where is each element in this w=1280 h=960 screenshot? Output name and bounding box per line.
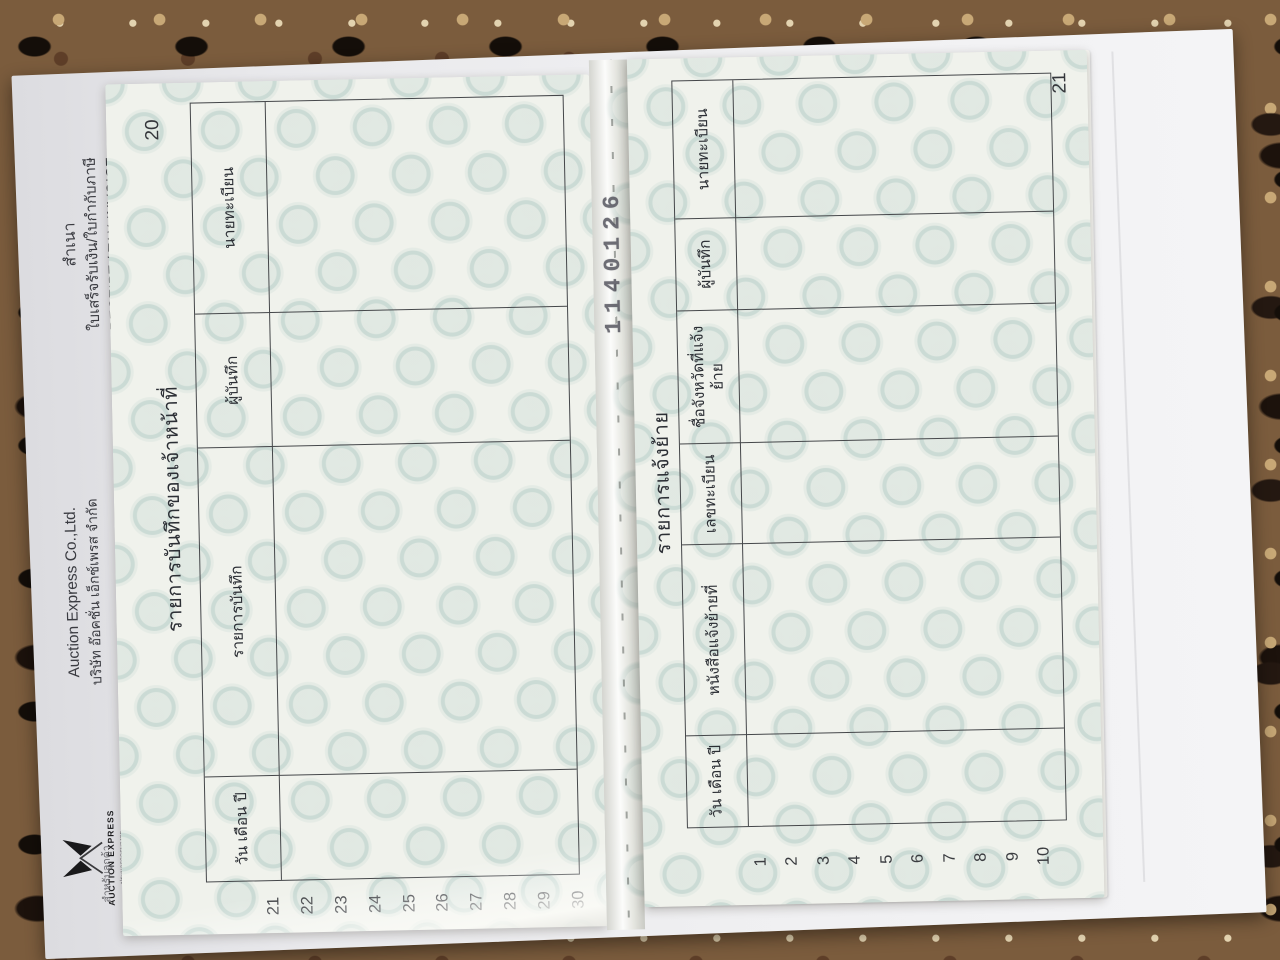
row-number: 2 — [783, 846, 803, 876]
row-number: 28 — [501, 884, 521, 918]
column-recorder: ผู้บันทึก — [195, 306, 570, 448]
column-header: เลขทะเบียน — [680, 443, 742, 545]
page-21-content: รายการแจ้งย้าย 21 1 2 3 4 5 6 7 8 9 10 — [627, 50, 1105, 907]
column-notice-number: หนังสือแจ้งย้ายที่ — [682, 537, 1064, 736]
page-20-row-numbers: 21 22 23 24 25 26 27 28 29 30 — [264, 882, 589, 923]
row-number: 10 — [1034, 841, 1054, 871]
relocation-notice-table: วัน เดือน ปี หนังสือแจ้งย้ายที่ เลขทะเบี… — [671, 73, 1067, 829]
photo-scene: สำเนา ใบเสร็จรับเงิน/ใบกำกับภาษี RECEIPT… — [0, 0, 1280, 960]
book-page-20: 20 รายการบันทึกของเจ้าหน้าที่ 21 22 23 2… — [105, 74, 607, 936]
column-date: วัน เดือน ปี — [686, 728, 1066, 828]
receipt-copy-label: สำเนา — [58, 222, 82, 267]
row-number: 26 — [433, 885, 453, 919]
column-header: หนังสือแจ้งย้ายที่ — [682, 544, 746, 735]
row-number: 9 — [1003, 841, 1023, 871]
page-21-row-numbers: 1 2 3 4 5 6 7 8 9 10 — [751, 841, 1054, 877]
row-number: 8 — [971, 842, 991, 872]
column-record: รายการบันทึก — [198, 440, 577, 777]
row-number: 30 — [569, 882, 589, 916]
row-number: 25 — [400, 886, 420, 920]
row-number: 3 — [814, 845, 834, 875]
row-number: 21 — [264, 889, 284, 923]
book-page-21: รายการแจ้งย้าย 21 1 2 3 4 5 6 7 8 9 10 — [627, 50, 1105, 907]
page-number-21: 21 — [1049, 72, 1071, 94]
row-number: 27 — [467, 885, 487, 919]
column-header: ผู้บันทึก — [675, 218, 737, 311]
receipt-company-th: บริษัท อ๊อคชั่น เอ็กซ์เพรส จำกัด — [82, 498, 108, 685]
row-number: 22 — [298, 888, 318, 922]
column-header: รายการบันทึก — [198, 447, 279, 777]
officials-record-table: วัน เดือน ปี รายการบันทึก ผู้บันทึก นายท… — [190, 95, 580, 883]
column-registrar: นายทะเบียน — [191, 96, 567, 314]
row-number: 6 — [909, 843, 929, 873]
row-number: 5 — [877, 844, 897, 874]
column-registrar: นายทะเบียน — [672, 74, 1053, 218]
column-province: ชื่อจังหวัดที่แจ้งย้าย — [677, 303, 1058, 444]
column-recorder: ผู้บันทึก — [675, 210, 1055, 310]
column-registration-number: เลขทะเบียน — [680, 435, 1060, 544]
row-number: 1 — [751, 847, 771, 877]
row-number: 29 — [535, 883, 555, 917]
column-header: ชื่อจังหวัดที่แจ้งย้าย — [677, 310, 740, 443]
row-number: 7 — [940, 843, 960, 873]
page-20-title: รายการบันทึกของเจ้าหน้าที่ — [147, 83, 197, 935]
row-number: 23 — [332, 887, 352, 921]
receipt-footer-note: สำหรับลูกค้า — [97, 824, 115, 924]
column-header: ผู้บันทึก — [195, 313, 272, 447]
column-header: วัน เดือน ปี — [686, 735, 748, 827]
column-header: นายทะเบียน — [672, 80, 735, 218]
column-header: วัน เดือน ปี — [205, 776, 281, 882]
receipt-company-block: Auction Express Co.,Ltd. บริษัท อ๊อคชั่น… — [54, 466, 113, 717]
book-serial-stamp: 1140126 — [598, 161, 635, 362]
row-number: 24 — [366, 887, 386, 921]
column-date: วัน เดือน ปี — [205, 769, 579, 882]
column-header: นายทะเบียน — [191, 102, 269, 314]
row-number: 4 — [846, 845, 866, 875]
page-20-content: 20 รายการบันทึกของเจ้าหน้าที่ 21 22 23 2… — [105, 74, 607, 936]
